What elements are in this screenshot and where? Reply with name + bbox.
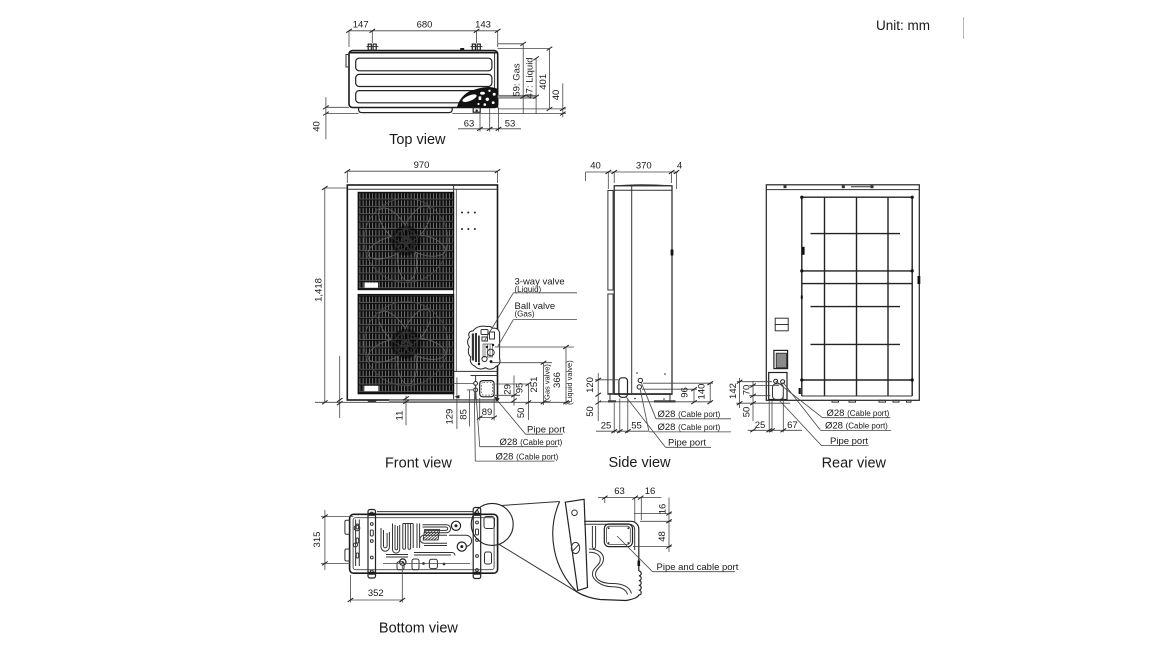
svg-text:11: 11 <box>395 411 406 421</box>
svg-text:95: 95 <box>515 383 526 394</box>
svg-text:Pipe port: Pipe port <box>527 425 565 436</box>
svg-text:1,418: 1,418 <box>314 278 325 302</box>
svg-text:48: 48 <box>657 531 668 542</box>
svg-text:40: 40 <box>551 90 562 101</box>
svg-text:970: 970 <box>414 160 430 171</box>
svg-text:Front view: Front view <box>385 456 452 472</box>
svg-text:29: 29 <box>503 384 514 395</box>
svg-text:Pipe port: Pipe port <box>830 436 868 447</box>
svg-text:370: 370 <box>636 161 652 172</box>
svg-text:63: 63 <box>464 119 475 130</box>
svg-text:70: 70 <box>742 385 753 396</box>
svg-text:25: 25 <box>755 420 766 431</box>
svg-text:89: 89 <box>482 407 493 418</box>
svg-text:Pipe port: Pipe port <box>668 438 706 449</box>
svg-text:47: Liquid: 47: Liquid <box>525 57 536 98</box>
svg-text:251: 251 <box>529 377 540 393</box>
svg-text:680: 680 <box>417 19 433 30</box>
svg-text:129: 129 <box>445 409 456 425</box>
svg-text:63: 63 <box>614 486 625 497</box>
svg-text:Ø28 (Cable port): Ø28 (Cable port) <box>827 408 890 419</box>
svg-text:96: 96 <box>680 387 691 398</box>
svg-text:Ø28 (Cable port): Ø28 (Cable port) <box>658 422 721 433</box>
svg-text:142: 142 <box>728 383 739 399</box>
svg-text:Ø28 (Cable port): Ø28 (Cable port) <box>825 421 888 432</box>
svg-text:366: 366 <box>552 372 563 388</box>
svg-text:Ø28 (Cable port): Ø28 (Cable port) <box>496 451 559 462</box>
svg-text:140: 140 <box>696 384 707 400</box>
svg-text:40: 40 <box>312 121 323 132</box>
svg-text:4: 4 <box>677 161 682 172</box>
svg-text:120: 120 <box>585 377 596 393</box>
svg-text:50: 50 <box>585 406 596 417</box>
svg-text:143: 143 <box>475 19 491 30</box>
svg-text:401: 401 <box>538 74 549 90</box>
svg-text:(Gas): (Gas) <box>515 309 535 318</box>
svg-text:16: 16 <box>645 486 656 497</box>
svg-text:25: 25 <box>601 420 612 431</box>
svg-text:50: 50 <box>516 408 527 419</box>
svg-text:315: 315 <box>312 532 323 548</box>
svg-text:Unit: mm: Unit: mm <box>876 18 930 33</box>
svg-text:50: 50 <box>742 407 753 418</box>
svg-text:Side view: Side view <box>608 455 671 471</box>
svg-text:40: 40 <box>590 161 601 172</box>
svg-text:(Liquid valve): (Liquid valve) <box>565 360 574 405</box>
svg-text:59: Gas: 59: Gas <box>512 63 523 97</box>
svg-text:Rear view: Rear view <box>822 456 887 472</box>
svg-text:55: 55 <box>631 420 642 431</box>
svg-text:Pipe and cable port: Pipe and cable port <box>657 562 739 573</box>
svg-text:Ø28 (Cable port): Ø28 (Cable port) <box>500 437 563 448</box>
svg-text:53: 53 <box>505 119 516 130</box>
svg-text:Bottom view: Bottom view <box>379 621 458 637</box>
svg-text:Ø28 (Cable port): Ø28 (Cable port) <box>658 409 721 420</box>
svg-text:16: 16 <box>658 504 669 515</box>
svg-text:67: 67 <box>787 420 798 431</box>
svg-text:Top view: Top view <box>389 132 446 148</box>
svg-text:352: 352 <box>368 588 384 599</box>
svg-text:85: 85 <box>459 409 470 420</box>
svg-text:147: 147 <box>353 19 369 30</box>
svg-text:(Gas valve): (Gas valve) <box>543 364 552 403</box>
